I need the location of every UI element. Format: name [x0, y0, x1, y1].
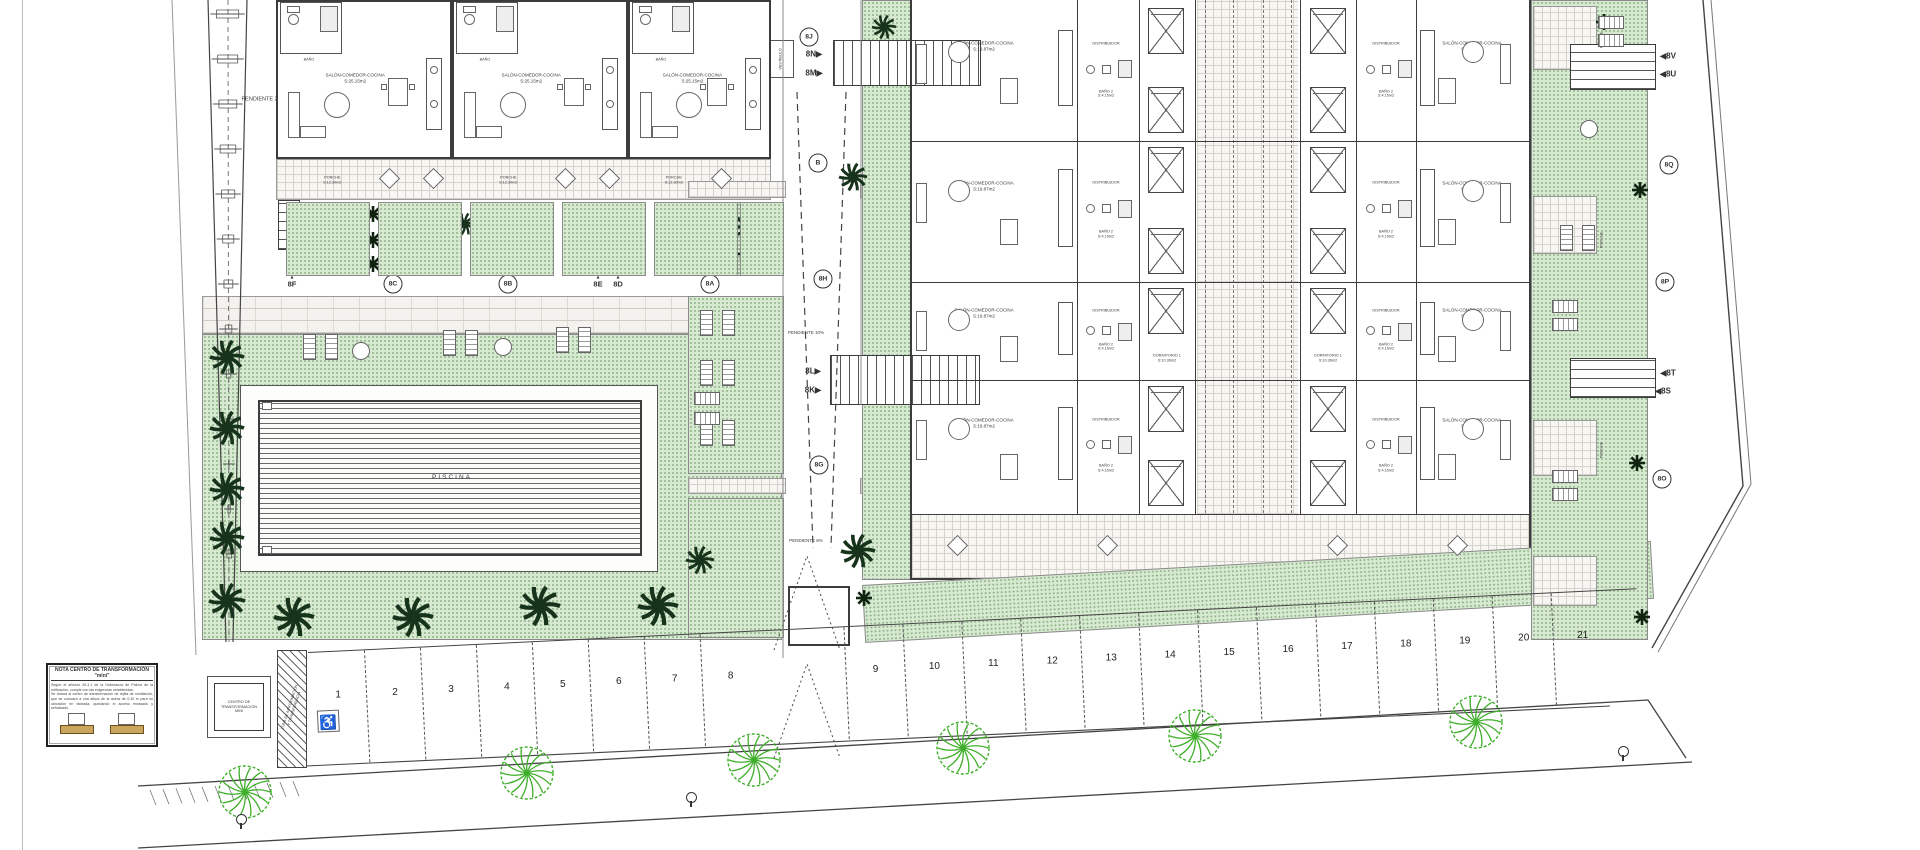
kitchen: [1058, 302, 1073, 356]
curb-tick: [163, 789, 169, 804]
shower: [1118, 60, 1132, 78]
slope-label: PENDIENTE 8%: [789, 538, 823, 544]
parking-number: 20: [1518, 633, 1529, 644]
building-west-wall: [910, 0, 912, 580]
ct-diagram-base: [110, 725, 144, 734]
sofa: [464, 92, 476, 138]
unit-marker-8S: ◀8S: [1655, 387, 1671, 396]
floor-divider: [910, 141, 1531, 142]
washbasin: [1102, 65, 1111, 74]
street-tree-icon: [496, 742, 558, 804]
path-bench: [224, 280, 233, 288]
chair: [409, 84, 415, 90]
sunlounger-icon: [1560, 225, 1573, 251]
dining-table: [1000, 78, 1018, 104]
sink: [606, 100, 614, 108]
sunlounger-icon: [1552, 318, 1578, 331]
floor-divider: [910, 514, 1531, 515]
kitchen: [1058, 169, 1073, 247]
bed: [1310, 460, 1346, 506]
sofa: [916, 183, 927, 223]
corridor-dash: [1205, 0, 1206, 578]
stairs-east-b: [1570, 358, 1656, 398]
sunlounger-icon: [700, 360, 713, 386]
round-table: [948, 418, 970, 440]
parking-number: 8: [727, 671, 733, 682]
round-table: [948, 309, 970, 331]
toilet: [1366, 65, 1375, 74]
parking-number: 10: [929, 661, 940, 672]
path-bench: [223, 235, 234, 243]
burner: [606, 66, 614, 74]
shower: [1118, 436, 1132, 454]
parking-stall-5: 5: [532, 640, 593, 755]
parking-stall-9: 9: [843, 624, 907, 739]
wall: [1300, 0, 1301, 578]
sunlounger-icon: [465, 330, 478, 356]
site-east-boundary-inner: [1658, 0, 1751, 652]
street-tree-icon: [1164, 705, 1226, 767]
kitchen: [1420, 169, 1435, 247]
sunlounger-icon: [694, 412, 720, 425]
chair: [557, 84, 563, 90]
dining-table: [1000, 219, 1018, 245]
street-tree-icon: [723, 729, 785, 791]
sunlounger-icon: [578, 327, 591, 353]
transfer-zone: [277, 650, 307, 768]
sofa: [652, 126, 678, 138]
bed: [1148, 147, 1184, 193]
parking-stall-17: 17: [1315, 602, 1379, 717]
chair: [381, 84, 387, 90]
sunlounger-icon: [556, 327, 569, 353]
parking-number: 3: [448, 684, 454, 695]
vestibule: [768, 40, 794, 78]
ct-note-box: NOTA CENTRO DE TRANSFORMACIÓN "mini" Seg…: [46, 663, 158, 747]
toilet: [288, 14, 299, 25]
corridor: [1197, 0, 1298, 578]
floor-divider: [910, 380, 1531, 381]
bed-cross: [1311, 289, 1345, 333]
front-garden: [470, 202, 554, 276]
palm-tree-icon: [871, 14, 897, 40]
dining-table: [1438, 219, 1456, 245]
parking-stall-2: 2: [364, 648, 425, 763]
sunlounger-icon: [722, 360, 735, 386]
washbasin: [1382, 440, 1391, 449]
toilet: [1086, 204, 1095, 213]
bed-cross: [1149, 387, 1183, 431]
bed: [1310, 288, 1346, 334]
curb-tick: [150, 790, 156, 805]
dining-table: [1438, 336, 1456, 362]
path-bench: [216, 10, 238, 18]
accessible-parking-icon: ♿: [317, 710, 340, 733]
path-bench: [218, 55, 238, 63]
shrub-icon: [1627, 453, 1647, 473]
sofa: [916, 44, 927, 84]
spine-east-green: [862, 0, 912, 580]
sofa: [1500, 311, 1511, 351]
round-table: [1462, 418, 1484, 440]
chair: [700, 84, 706, 90]
unit-marker-B: B: [809, 154, 828, 173]
room-label: DORMITORIO 1 S:10.36m2: [1314, 354, 1342, 363]
sunlounger-icon: [1552, 300, 1578, 313]
parking-number: 13: [1106, 652, 1117, 663]
sunlounger-icon: [303, 334, 316, 360]
room-label: DISTRIBUIDOR: [1372, 309, 1399, 314]
round-table: [948, 41, 970, 63]
shower: [1398, 323, 1412, 341]
bed: [1148, 87, 1184, 133]
parking-stall-1: 1♿: [308, 650, 369, 765]
sofa: [916, 311, 927, 351]
sofa: [300, 126, 326, 138]
round-table: [1462, 180, 1484, 202]
shower: [1118, 323, 1132, 341]
bed-cross: [1311, 88, 1345, 132]
path-bench: [221, 190, 234, 198]
pool-steps: [262, 402, 272, 410]
kitchen: [1058, 407, 1073, 481]
front-garden: [562, 202, 646, 276]
bed-cross: [1149, 148, 1183, 192]
sunlounger-icon: [694, 392, 720, 405]
round-table: [676, 92, 702, 118]
sunlounger-icon: [1552, 488, 1578, 501]
sofa: [288, 92, 300, 138]
unit-marker-8G: 8G: [810, 456, 829, 475]
parking-number: 4: [504, 682, 510, 693]
shrub-icon: [1632, 607, 1652, 627]
room-label: BAÑO 2 S:4.15m2: [1378, 229, 1394, 238]
unit-marker-8L: 8L▶: [805, 367, 821, 376]
shower: [1398, 60, 1412, 78]
parking-number: 9: [873, 664, 879, 675]
site-plan: PISCINA VESTÍBULO PENDIENTE 10% PENDIENT…: [0, 0, 1920, 850]
palm-tree-icon: [685, 545, 715, 575]
palm-tree-icon: [637, 585, 679, 627]
shrub-icon: [1630, 180, 1650, 200]
washbasin: [1382, 204, 1391, 213]
ct-note-line: Según el artículo 26.3.1 de la Ordenanza…: [51, 683, 153, 692]
unit-marker-8N: 8N▶: [806, 50, 822, 59]
room-label: BAÑO 2 S:4.15m2: [1098, 464, 1114, 473]
unit-marker-8F: ▲8F: [288, 276, 297, 289]
parking-number: 19: [1459, 635, 1470, 646]
ct-note-body: Según el artículo 26.3.1 de la Ordenanza…: [51, 683, 153, 711]
site-east-boundary: [1652, 0, 1743, 648]
sunlounger-icon: [443, 330, 456, 356]
burner: [430, 66, 438, 74]
dining-table: [564, 78, 584, 106]
ct-diagram-base: [60, 725, 94, 734]
room-label: DISTRIBUIDOR: [1092, 418, 1119, 423]
room-label: BAÑO 2 S:4.15m2: [1098, 89, 1114, 98]
corridor-dash: [1291, 0, 1292, 578]
shower: [320, 6, 338, 32]
bed: [1148, 460, 1184, 506]
room-label: DISTRIBUIDOR: [1092, 41, 1119, 46]
bed-cross: [1149, 289, 1183, 333]
bed-cross: [1311, 229, 1345, 273]
toilet: [1366, 204, 1375, 213]
sofa: [1500, 183, 1511, 223]
unit-marker-8J: 8J: [800, 28, 819, 47]
bed: [1310, 386, 1346, 432]
wall: [1356, 0, 1357, 578]
east-terrace: [1533, 420, 1597, 476]
sink: [749, 100, 757, 108]
washbasin: [1382, 65, 1391, 74]
palm-tree-icon: [392, 596, 434, 638]
sofa: [476, 126, 502, 138]
toilet: [1366, 326, 1375, 335]
sheet-edge: [22, 0, 23, 850]
unit-marker-8D: ▲8D: [613, 276, 623, 289]
bed-cross: [1311, 387, 1345, 431]
kitchen: [1420, 407, 1435, 481]
parking-number: 16: [1282, 644, 1293, 655]
toilet-tank: [287, 6, 300, 13]
ct-diagram-unit: [118, 713, 135, 725]
ramp-edge: [831, 92, 846, 548]
unit-marker-8P: 8P: [1656, 273, 1675, 292]
kitchen: [1420, 30, 1435, 106]
shower: [1398, 200, 1412, 218]
palm-tree-icon: [209, 339, 245, 375]
garden-table: [352, 342, 370, 360]
bed: [1148, 288, 1184, 334]
street-lamp-icon: [686, 792, 697, 803]
round-table: [500, 92, 526, 118]
shower: [496, 6, 514, 32]
unit-marker-8U: ◀8U: [1660, 70, 1676, 79]
parking-number: 2: [392, 687, 398, 698]
front-garden: [286, 202, 370, 276]
bridge-walkway: [688, 181, 786, 198]
wall: [1416, 0, 1417, 578]
slope-label: PENDIENTE 10%: [788, 330, 824, 336]
corridor-dash: [1263, 0, 1264, 578]
garden-table: [1580, 120, 1598, 138]
unit-marker-8C: 8C: [384, 275, 403, 294]
chair: [728, 84, 734, 90]
dining-table: [388, 78, 408, 106]
bed: [1310, 228, 1346, 274]
front-garden: [378, 202, 462, 276]
unit-marker-8Q: 8Q: [1660, 156, 1679, 175]
stairs-east-a: [1570, 44, 1656, 90]
parking-number: 12: [1047, 655, 1058, 666]
parking-stall-3: 3: [420, 645, 481, 760]
ct-diagram-unit: [68, 713, 85, 725]
street-tree-icon: [214, 761, 276, 823]
bed-cross: [1149, 229, 1183, 273]
round-table: [324, 92, 350, 118]
toilet: [1086, 326, 1095, 335]
sunlounger-icon: [1598, 16, 1624, 29]
street-lamp-icon: [236, 814, 247, 825]
parking-number: 21: [1577, 630, 1588, 641]
bed-cross: [1311, 461, 1345, 505]
ct-box: [214, 683, 264, 731]
shower: [1118, 200, 1132, 218]
room-label: DORMITORIO 1 S:10.36m2: [1153, 354, 1181, 363]
sunlounger-icon: [722, 310, 735, 336]
parking-stall-7: 7: [644, 634, 705, 749]
room-label: BAÑO 2 S:4.15m2: [1378, 342, 1394, 351]
sunlounger-icon: [1598, 34, 1624, 47]
curb-tick: [280, 782, 286, 797]
unit-marker-8E: ▲8E: [593, 276, 602, 289]
room-label: BAÑO 2 S:4.15m2: [1378, 464, 1394, 473]
sofa: [1500, 420, 1511, 460]
bed: [1148, 386, 1184, 432]
bed: [1148, 228, 1184, 274]
corridor-dash: [1233, 0, 1234, 578]
washbasin: [1102, 204, 1111, 213]
dining-table: [1000, 336, 1018, 362]
parking-stall-21: 21: [1551, 590, 1615, 705]
chair: [585, 84, 591, 90]
curb-tick: [202, 787, 208, 802]
unit-marker-8O: 8O: [1653, 470, 1672, 489]
ct-note-title: NOTA CENTRO DE TRANSFORMACIÓN "mini": [51, 667, 153, 681]
palm-tree-icon: [519, 585, 561, 627]
room-label: DISTRIBUIDOR: [1372, 41, 1399, 46]
shower: [1398, 436, 1412, 454]
street-tree-icon: [1445, 691, 1507, 753]
garden-table: [494, 338, 512, 356]
bed: [1310, 87, 1346, 133]
wall: [1139, 0, 1140, 578]
burner: [749, 66, 757, 74]
street-lamp-icon: [1618, 746, 1629, 757]
parking-number: 6: [615, 676, 621, 687]
dining-table: [1000, 454, 1018, 480]
parking-number: 18: [1400, 638, 1411, 649]
parking-number: 14: [1165, 650, 1176, 661]
site-west-outer-line: [172, 0, 196, 655]
wall: [1195, 0, 1196, 578]
parking-stall-4: 4: [476, 642, 537, 757]
washbasin: [1102, 326, 1111, 335]
palm-tree-icon: [838, 162, 868, 192]
east-garden-strip: [1531, 0, 1648, 640]
ct-note-line: Se dotará al centro de transformación de…: [51, 692, 153, 711]
parking-number: 5: [560, 679, 566, 690]
parking-stall-12: 12: [1020, 616, 1084, 731]
room-label: DISTRIBUIDOR: [1372, 181, 1399, 186]
round-table: [948, 180, 970, 202]
bed-cross: [1311, 9, 1345, 53]
room-label: DISTRIBUIDOR: [1092, 309, 1119, 314]
sofa: [640, 92, 652, 138]
parking-number: 15: [1224, 647, 1235, 658]
curb-tick: [293, 781, 299, 796]
parking-stall-6: 6: [588, 637, 649, 752]
unit-marker-8H: 8H: [814, 270, 833, 289]
round-table: [1462, 309, 1484, 331]
bed: [1310, 8, 1346, 54]
kitchen: [1420, 302, 1435, 356]
pool-steps: [262, 546, 272, 554]
toilet: [1366, 440, 1375, 449]
path-bench: [220, 145, 236, 153]
curb-tick: [189, 788, 195, 803]
sofa: [1500, 44, 1511, 84]
parking-number: 17: [1341, 641, 1352, 652]
front-garden: [740, 202, 784, 276]
sunlounger-icon: [700, 310, 713, 336]
palm-tree-icon: [840, 533, 876, 569]
unit-marker-8K: 8K▶: [805, 386, 821, 395]
street-tree-icon: [932, 717, 994, 779]
room-label: BAÑO 2 S:4.15m2: [1378, 89, 1394, 98]
sink: [430, 100, 438, 108]
parking-number: 7: [671, 673, 677, 684]
shrub-icon: [854, 588, 874, 608]
sunlounger-icon: [722, 420, 735, 446]
toilet: [464, 14, 475, 25]
kitchen: [1058, 30, 1073, 106]
front-garden: [654, 202, 738, 276]
room-label: DISTRIBUIDOR: [1372, 418, 1399, 423]
palm-tree-icon: [209, 410, 245, 446]
washbasin: [1382, 326, 1391, 335]
bed: [1148, 8, 1184, 54]
floor-divider: [910, 282, 1531, 283]
palm-tree-icon: [209, 520, 245, 556]
parking-stall-18: 18: [1374, 599, 1438, 714]
unit-marker-8A: 8A: [701, 275, 720, 294]
toilet: [1086, 65, 1095, 74]
washbasin: [1102, 440, 1111, 449]
pool: [258, 400, 642, 556]
toilet-tank: [639, 6, 652, 13]
parking-stall-16: 16: [1256, 605, 1320, 720]
toilet: [640, 14, 651, 25]
wall: [1077, 0, 1078, 578]
bed: [1310, 147, 1346, 193]
round-table: [1462, 41, 1484, 63]
unit-marker-8B: 8B: [499, 275, 518, 294]
sofa: [916, 420, 927, 460]
bed-cross: [1149, 9, 1183, 53]
bed-cross: [1149, 461, 1183, 505]
street-edge: [138, 762, 1692, 848]
parking-number: 1: [335, 690, 341, 701]
toilet: [1086, 440, 1095, 449]
toilet-tank: [463, 6, 476, 13]
dining-table: [1438, 78, 1456, 104]
palm-tree-icon: [208, 582, 246, 620]
unit-marker-8M: 8M▶: [805, 69, 822, 78]
parking-number: 11: [988, 658, 998, 669]
palm-tree-icon: [209, 471, 245, 507]
room-label: BAÑO 2 S:4.15m2: [1098, 342, 1114, 351]
curb-tick: [176, 788, 182, 803]
bed-cross: [1149, 88, 1183, 132]
dining-table: [707, 78, 727, 106]
sunlounger-icon: [325, 334, 338, 360]
path-bench: [219, 100, 237, 108]
bed-cross: [1311, 148, 1345, 192]
room-label: DISTRIBUIDOR: [1092, 181, 1119, 186]
parking-stall-13: 13: [1079, 613, 1143, 728]
